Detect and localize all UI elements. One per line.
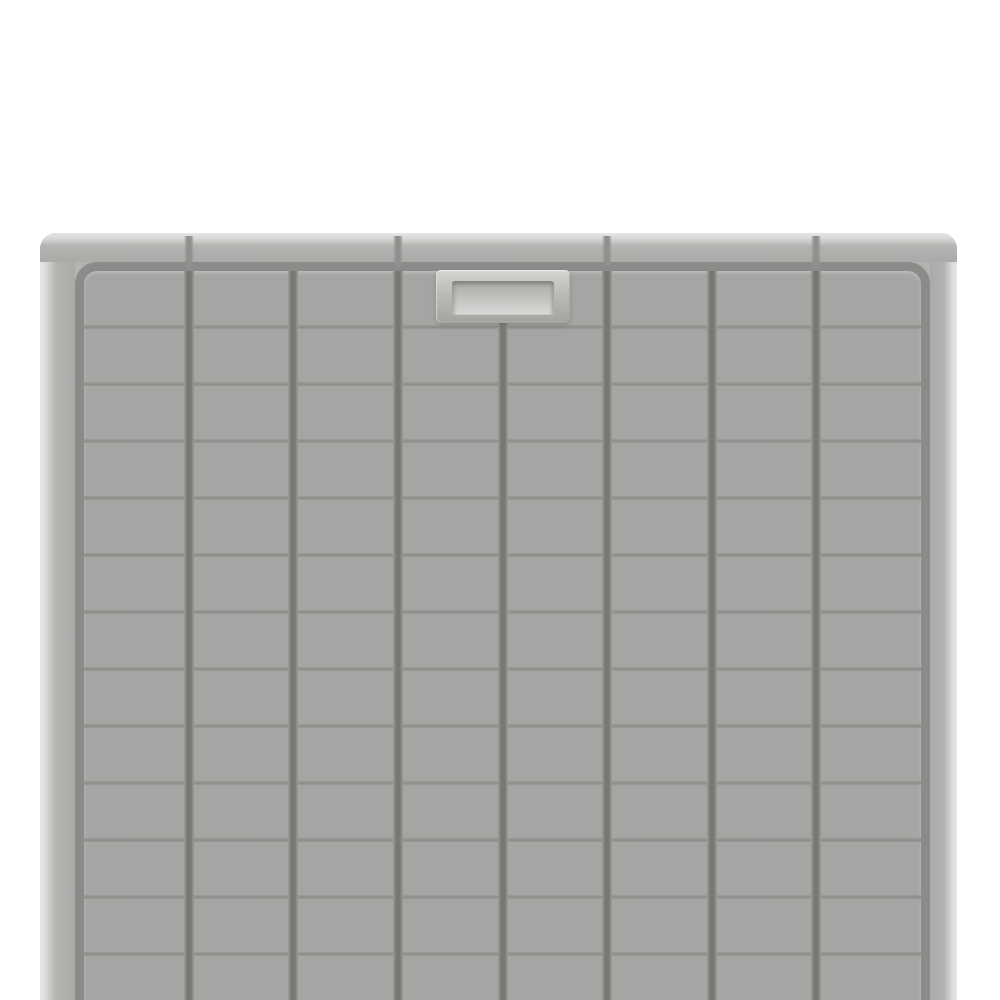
grid-tray	[40, 233, 957, 1000]
grid-column-groove	[393, 271, 403, 1000]
photo-canvas: { "scene": { "description": "Product pho…	[0, 0, 1000, 1000]
rim-notch	[184, 236, 194, 267]
handle-badge-plate	[436, 270, 570, 323]
photo-stage	[0, 0, 1000, 1000]
rim-notch	[811, 236, 821, 267]
rim-notch	[602, 236, 612, 267]
grid-column-groove	[602, 271, 612, 1000]
tray-right-wall	[930, 233, 957, 1000]
grid-column-groove	[288, 271, 298, 1000]
grid-column-groove	[811, 271, 821, 1000]
grid-column-groove	[498, 323, 508, 1000]
tray-left-wall	[40, 233, 75, 1000]
handle-badge-recess	[452, 281, 554, 315]
rim-notch	[393, 236, 403, 267]
grid-column-groove	[707, 271, 717, 1000]
tray-grid-field	[75, 262, 930, 1000]
grid-column-groove	[184, 271, 194, 1000]
